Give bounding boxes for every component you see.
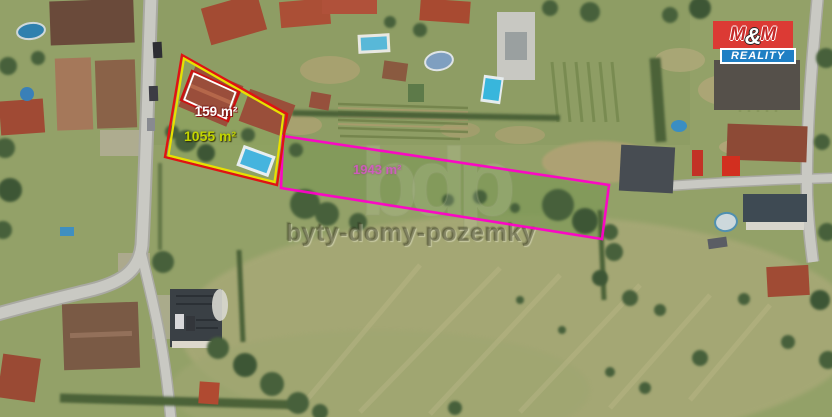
agency-logo: M&M REALITY [713,21,805,64]
plot-area-label: 1055 m² [184,128,236,144]
agency-logo-ampersand: & [745,23,762,50]
agency-logo-m1: M [730,24,746,46]
agency-logo-bottom: REALITY [720,48,796,64]
agency-logo-m2: M [760,24,776,46]
building-area-label: 159 m² [190,104,242,119]
land-area-label: 1943 m² [353,162,401,177]
agency-logo-top: M&M [713,21,793,49]
parcel-overlays [0,0,832,417]
aerial-listing-image: bdp byty-domy-pozemky 159 m² 1055 m² 194… [0,0,832,417]
land-parcel-outline-magenta [281,136,609,239]
